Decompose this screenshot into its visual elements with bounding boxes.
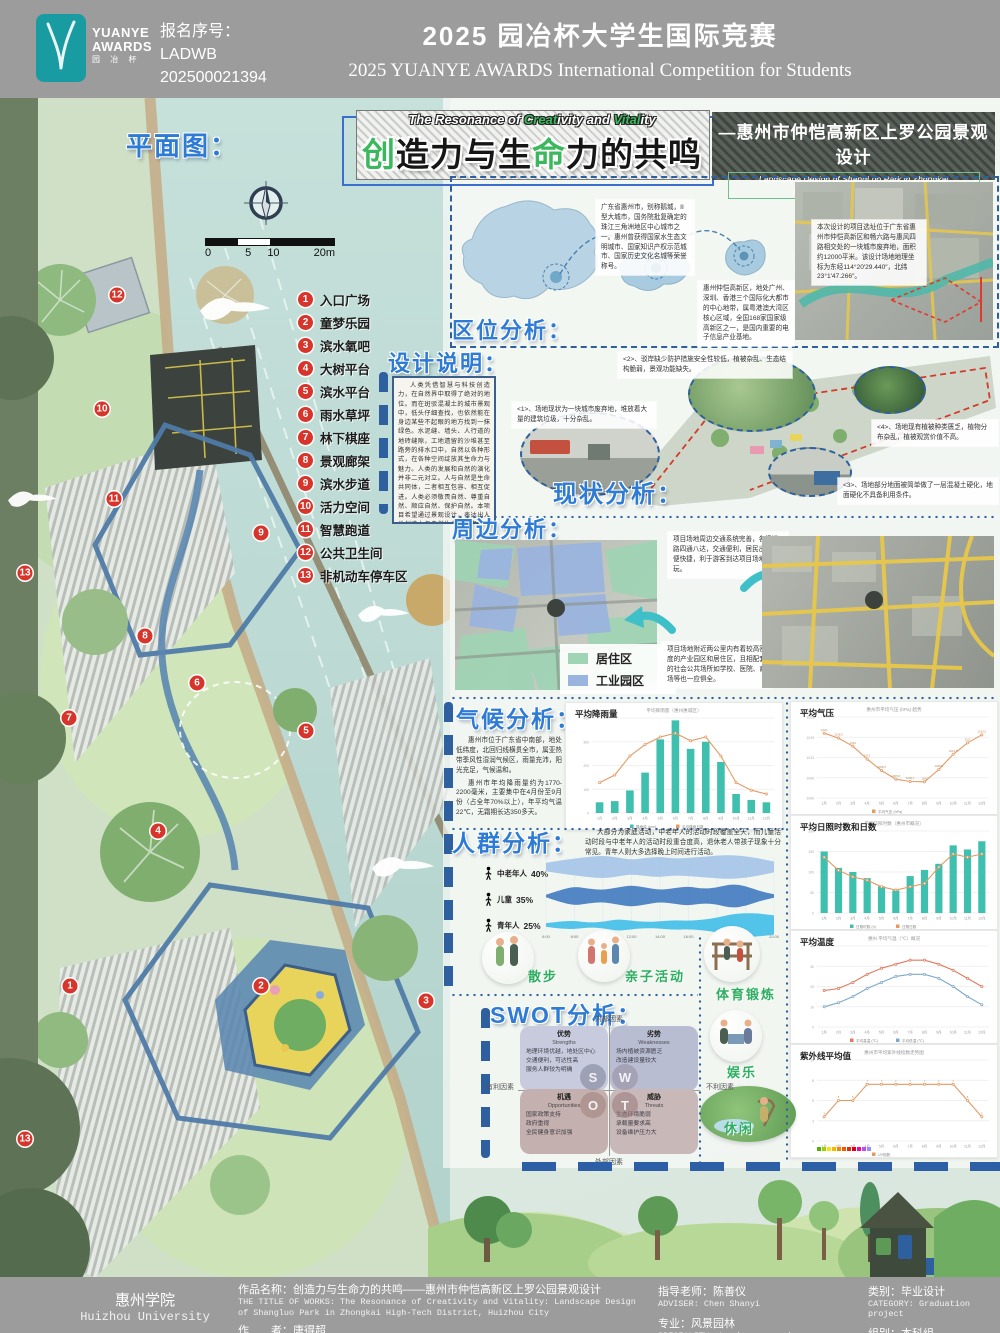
svg-text:9月: 9月 xyxy=(718,817,723,821)
plan-label: 平面图： xyxy=(126,126,238,163)
reg-code-2: 202500021394 xyxy=(160,66,267,89)
legend-number: 5 xyxy=(298,384,313,399)
svg-text:1月: 1月 xyxy=(822,802,827,806)
legend-item: 1入口广场 xyxy=(298,288,408,311)
work-block: 作品名称：创造力与生命力的共鸣——惠州市仲恺高新区上罗公园景观设计 THE TI… xyxy=(238,1281,648,1333)
svg-text:0: 0 xyxy=(812,912,814,916)
svg-text:3月: 3月 xyxy=(850,917,855,921)
swot-axis-top: 内部因素 xyxy=(595,1014,623,1024)
svg-text:7月: 7月 xyxy=(908,1145,913,1149)
svg-text:7月: 7月 xyxy=(908,802,913,806)
svg-text:1000: 1000 xyxy=(806,797,814,801)
legend-label: 滨水平台 xyxy=(320,382,370,401)
svg-text:11月: 11月 xyxy=(964,1145,971,1149)
adviser-cn: 指导老师：陈善仪 xyxy=(658,1283,858,1299)
svg-text:10月: 10月 xyxy=(950,1031,957,1035)
svg-text:平均降雨量（惠州惠城区）: 平均降雨量（惠州惠城区） xyxy=(646,707,701,714)
chart-panel-label: 平均气压 xyxy=(800,707,834,719)
author-cn: 作 者：唐得超 xyxy=(238,1322,648,1333)
title-part: Vital xyxy=(614,112,641,127)
person-icon xyxy=(484,866,493,881)
work-title-en: THE TITLE OF WORKS: The Resonance of Cre… xyxy=(238,1297,648,1320)
chart-rainfall: 平均降雨量平均降雨量（惠州惠城区）40030020010001月2月3月4月5月… xyxy=(565,702,783,830)
svg-text:4月: 4月 xyxy=(642,817,647,821)
school-name-en: Huizhou University xyxy=(40,1310,250,1324)
svg-text:1005: 1005 xyxy=(921,776,928,780)
svg-text:12月: 12月 xyxy=(978,917,985,921)
status-note-1: <1>、场地现状为一块城市废弃地，堆放着大量的建筑垃圾，十分杂乱。 xyxy=(512,402,656,428)
person-icon xyxy=(484,918,493,933)
legend-label: 大树平台 xyxy=(320,359,370,378)
svg-text:3: 3 xyxy=(981,1111,983,1115)
swot-axis-right: 不利因素 xyxy=(706,1082,734,1092)
svg-text:平均低温 (℃): 平均低温 (℃) xyxy=(902,1038,924,1043)
chart-panel-label: 紫外线平均值 xyxy=(800,1050,851,1062)
swot-letter-t: T xyxy=(612,1092,638,1118)
svg-text:10月: 10月 xyxy=(950,917,957,921)
family-activity-icon xyxy=(578,930,630,982)
swot-diagram: 内部因素 外部因素 有利因素 不利因素 优势Strengths地理环境优越，地处… xyxy=(516,1016,702,1164)
svg-text:2月: 2月 xyxy=(836,917,841,921)
svg-text:2月: 2月 xyxy=(612,817,617,821)
crowd-group-1: 中老年人 40% xyxy=(484,866,548,881)
svg-text:10月: 10月 xyxy=(950,1145,957,1149)
svg-text:7: 7 xyxy=(909,1079,911,1083)
svg-text:3月: 3月 xyxy=(850,1031,855,1035)
svg-text:9月: 9月 xyxy=(936,917,941,921)
location-title: 区位分析： xyxy=(452,313,572,345)
svg-text:11月: 11月 xyxy=(964,802,971,806)
svg-text:6月: 6月 xyxy=(893,802,898,806)
svg-text:5月: 5月 xyxy=(879,802,884,806)
legend-number: 1 xyxy=(298,292,313,307)
title-part: 造力与生 xyxy=(396,136,532,173)
svg-text:150: 150 xyxy=(808,850,814,854)
title-part: Creat xyxy=(524,112,557,127)
climate-p2: 惠州市年均降雨量约为1770-2200毫米，主要集中在4月份至9月份（占全年70… xyxy=(456,779,562,819)
svg-text:3: 3 xyxy=(823,1111,825,1115)
activity-sport-label: 体育锻炼 xyxy=(716,984,776,1003)
design-statement: 人类凭借智慧与科技创造力，在自然界中取得了绝对的地位。而在斑驳混凝土的城市景观中… xyxy=(392,376,496,524)
svg-text:20: 20 xyxy=(810,985,814,989)
climate-p1: 惠州市位于广东省中南部，地处低纬度，北回归线横贯全市，属亚热带季风性湿润气候区，… xyxy=(456,736,562,776)
svg-text:5月: 5月 xyxy=(879,1031,884,1035)
svg-text:8月: 8月 xyxy=(922,917,927,921)
svg-text:5: 5 xyxy=(967,1095,969,1099)
svg-text:0: 0 xyxy=(812,1140,814,1144)
swot-quadrant-name: 劣势 xyxy=(616,1031,692,1040)
svg-text:8月: 8月 xyxy=(703,817,708,821)
svg-text:9月: 9月 xyxy=(936,802,941,806)
scale-bar: 0 5 10 20m xyxy=(205,238,335,259)
svg-text:4月: 4月 xyxy=(865,802,870,806)
svg-text:10月: 10月 xyxy=(732,817,739,821)
walking-icon xyxy=(482,932,534,984)
crowd-group-3: 青年人 25% xyxy=(484,918,541,933)
logo-line2: AWARDS xyxy=(92,40,152,54)
swot-letter-s: S xyxy=(580,1064,606,1090)
activity-leisure-label: 休闲 xyxy=(724,1118,754,1137)
residential-label: 居住区 xyxy=(596,650,632,667)
svg-text:11月: 11月 xyxy=(748,817,755,821)
industrial-label: 工业园区 xyxy=(596,672,644,689)
group-cn: 组别：本科组 xyxy=(868,1325,998,1333)
category-block: 类别：毕业设计 CATEGORY: Graduation project 组别：… xyxy=(868,1283,998,1333)
svg-text:7月: 7月 xyxy=(908,917,913,921)
svg-text:3: 3 xyxy=(812,1119,814,1123)
svg-text:1008.5: 1008.5 xyxy=(877,765,886,769)
svg-text:8月: 8月 xyxy=(922,802,927,806)
legend-number: 13 xyxy=(298,568,313,583)
legend-item: 2童梦乐园 xyxy=(298,311,408,334)
svg-text:8月: 8月 xyxy=(922,1145,927,1149)
svg-text:1019.5: 1019.5 xyxy=(978,729,987,733)
category-en: CATEGORY: Graduation project xyxy=(868,1299,998,1319)
legend-number: 7 xyxy=(298,430,313,445)
title-part: 命 xyxy=(532,136,566,173)
group-2-name: 儿童 xyxy=(497,894,512,905)
svg-text:1005.1: 1005.1 xyxy=(906,776,915,780)
legend-number: 9 xyxy=(298,476,313,491)
svg-text:5月: 5月 xyxy=(879,1145,884,1149)
title-part: 力的共鸣 xyxy=(566,136,702,173)
banner-eyebrow: The Resonance of Creativity and Vitality xyxy=(356,112,708,127)
chart-panel-label: 平均降雨量 xyxy=(575,708,618,720)
photo-vegetation xyxy=(854,366,926,414)
svg-text:7: 7 xyxy=(881,1079,883,1083)
location-text-site: 本次设计的项目选址位于广东省惠州市仲恺高新区和畅六路与惠风四路相交处的一块城市废… xyxy=(812,220,926,285)
climate-title: 气候分析： xyxy=(456,700,581,734)
legend-number: 11 xyxy=(298,522,313,537)
site-plan-illustration xyxy=(0,98,450,1277)
svg-text:3月: 3月 xyxy=(850,802,855,806)
svg-text:平均气压 (hPa): 平均气压 (hPa) xyxy=(878,809,902,814)
svg-text:1019: 1019 xyxy=(806,736,814,740)
climate-text: 惠州市位于广东省中南部，地处低纬度，北回归线横贯全市，属亚热带季风性湿润气候区，… xyxy=(456,736,562,818)
legend-item: 13非机动车停车区 xyxy=(298,564,408,587)
location-text-province: 广东省惠州市，别称鹅城，II型大城市，国务院批复确定的珠江三角洲地区中心城市之一… xyxy=(596,200,694,275)
legend-label: 非机动车停车区 xyxy=(320,566,408,585)
svg-text:惠州 平均气温（℃）概况: 惠州 平均气温（℃）概况 xyxy=(868,935,921,942)
logo-wordmark: YUANYE AWARDS 园 冶 杯 xyxy=(92,26,152,65)
group-3-name: 青年人 xyxy=(497,920,520,931)
yuanye-logo-icon xyxy=(36,14,86,82)
legend-item: 12公共卫生间 xyxy=(298,541,408,564)
svg-text:8: 8 xyxy=(812,1079,814,1083)
title-part: ity xyxy=(641,112,656,127)
status-note-3: <3>、场地部分地面被简单做了一层混凝土硬化，地面硬化不具备利用条件。 xyxy=(838,478,998,504)
logo-line3: 园 冶 杯 xyxy=(92,56,152,64)
swot-letter-w: W xyxy=(612,1064,638,1090)
svg-text:7: 7 xyxy=(866,1079,868,1083)
svg-text:12月: 12月 xyxy=(978,802,985,806)
svg-text:1月: 1月 xyxy=(822,917,827,921)
chart-panel-label: 平均温度 xyxy=(800,936,834,948)
footer-bar: 惠州学院 Huizhou University 作品名称：创造力与生命力的共鸣—… xyxy=(0,1277,1000,1333)
adviser-block: 指导老师：陈善仪 ADVISER: Chen Shanyi 专业：风景园林 SP… xyxy=(658,1283,858,1333)
svg-text:6:00: 6:00 xyxy=(542,934,551,939)
status-note-2: <2>、驳岸缺少防护措施安全性较低，植被杂乱、生态结构脆弱，景观功能缺失。 xyxy=(618,352,792,378)
svg-text:7: 7 xyxy=(924,1079,926,1083)
svg-text:8月: 8月 xyxy=(922,1031,927,1035)
svg-text:3月: 3月 xyxy=(627,817,632,821)
swot-quadrant-name: 优势 xyxy=(526,1031,602,1040)
legend-number: 8 xyxy=(298,453,313,468)
header-bar: YUANYE AWARDS 园 冶 杯 报名序号： LADWB 20250002… xyxy=(0,0,1000,98)
svg-text:惠州市平均气压 (hPa) 趋势: 惠州市平均气压 (hPa) 趋势 xyxy=(866,706,922,713)
svg-text:6月: 6月 xyxy=(673,817,678,821)
svg-text:10月: 10月 xyxy=(950,802,957,806)
competition-title-cn: 2025 园冶杯大学生国际竞赛 xyxy=(320,16,880,53)
swot-axis-left: 有利因素 xyxy=(486,1082,514,1092)
surrounding-text-2: 项目场地附近两公里内有着较高密度的产业园区和居住区，且相配套的社会公共场所如学校… xyxy=(662,642,772,688)
legend-label: 童梦乐园 xyxy=(320,313,370,332)
svg-text:7: 7 xyxy=(952,1079,954,1083)
svg-text:11月: 11月 xyxy=(964,1031,971,1035)
design-statement-text: 人类凭借智慧与科技创造力，在自然界中取得了绝对的地位。而在斑驳混凝土的城市景观中… xyxy=(398,381,490,524)
svg-text:7: 7 xyxy=(895,1079,897,1083)
svg-text:2月: 2月 xyxy=(836,802,841,806)
legend-number: 2 xyxy=(298,315,313,330)
title-part: ivity and xyxy=(557,112,613,127)
crowd-title: 人群分析： xyxy=(452,824,577,858)
svg-text:0: 0 xyxy=(812,1026,814,1030)
legend-label: 入口广场 xyxy=(320,290,370,309)
legend-label: 滨水氧吧 xyxy=(320,336,370,355)
legend-label: 智慧跑道 xyxy=(320,520,370,539)
legend-number: 4 xyxy=(298,361,313,376)
surrounding-road-map xyxy=(762,536,994,688)
chart-panel-label: 平均日照时数和日数 xyxy=(800,821,877,833)
design-title: 设计说明： xyxy=(388,346,508,378)
school-block: 惠州学院 Huizhou University xyxy=(40,1289,250,1324)
svg-text:0: 0 xyxy=(587,812,589,816)
svg-text:6月: 6月 xyxy=(893,1031,898,1035)
svg-text:12月: 12月 xyxy=(763,817,770,821)
svg-text:1016: 1016 xyxy=(850,741,857,745)
svg-text:1017: 1017 xyxy=(964,738,971,742)
project-banner: —惠州市仲恺高新区上罗公园景观设计 Landscape Design of Sh… xyxy=(712,112,995,180)
bottom-illustration xyxy=(428,1158,1000,1277)
activity-family-label: 亲子活动 xyxy=(625,966,685,985)
major-cn: 专业：风景园林 xyxy=(658,1315,858,1331)
svg-text:5: 5 xyxy=(812,1099,814,1103)
svg-text:惠州市平均紫外线指数走势图: 惠州市平均紫外线指数走势图 xyxy=(864,1049,924,1056)
svg-text:UV指数: UV指数 xyxy=(878,1152,891,1157)
svg-text:日照时数 (h): 日照时数 (h) xyxy=(856,924,876,929)
swot-letter-o: O xyxy=(580,1092,606,1118)
work-title-cn: 作品名称：创造力与生命力的共鸣——惠州市仲恺高新区上罗公园景观设计 xyxy=(238,1281,648,1297)
svg-text:100: 100 xyxy=(583,788,589,792)
industrial-swatch xyxy=(568,675,588,686)
reg-label: 报名序号： xyxy=(160,20,267,43)
svg-text:12月: 12月 xyxy=(978,1031,985,1035)
category-cn: 类别：毕业设计 xyxy=(868,1283,998,1299)
svg-text:2月: 2月 xyxy=(836,1031,841,1035)
divider-v2 xyxy=(785,700,789,1163)
adviser-en: ADVISER: Chen Shanyi xyxy=(658,1299,858,1309)
group-1-name: 中老年人 xyxy=(497,868,527,879)
poster: YUANYE AWARDS 园 冶 杯 报名序号： LADWB 20250002… xyxy=(0,0,1000,1333)
svg-text:6月: 6月 xyxy=(893,917,898,921)
arrow-left-icon xyxy=(624,604,676,638)
swot-quadrant-name-en: Weaknesses xyxy=(616,1040,692,1046)
svg-text:7月: 7月 xyxy=(908,1031,913,1035)
design-ladder xyxy=(379,372,388,514)
svg-text:9月: 9月 xyxy=(936,1145,941,1149)
svg-text:1月: 1月 xyxy=(822,1031,827,1035)
crowd-group-2: 儿童 35% xyxy=(484,892,533,907)
divider-v1 xyxy=(698,935,702,1163)
status-title: 现状分析： xyxy=(553,474,683,509)
exercise-icon xyxy=(704,926,760,982)
svg-text:7: 7 xyxy=(938,1079,940,1083)
reg-code-1: LADWB xyxy=(160,43,267,66)
residential-swatch xyxy=(568,653,588,664)
svg-text:日照日数: 日照日数 xyxy=(902,924,917,929)
legend-number: 10 xyxy=(298,499,313,514)
legend-label: 雨水草坪 xyxy=(320,405,370,424)
competition-title-en: 2025 YUANYE AWARDS International Competi… xyxy=(280,60,920,82)
svg-text:300: 300 xyxy=(583,740,589,744)
svg-text:1008.8: 1008.8 xyxy=(935,764,944,768)
scale-0: 0 xyxy=(205,247,211,259)
svg-text:10: 10 xyxy=(810,1005,814,1009)
svg-text:1月: 1月 xyxy=(597,817,602,821)
entertainment-icon xyxy=(710,1010,762,1062)
svg-text:平均高温 (℃): 平均高温 (℃) xyxy=(856,1038,878,1043)
svg-text:6月: 6月 xyxy=(893,1145,898,1149)
svg-text:1018.5: 1018.5 xyxy=(834,733,843,737)
svg-text:16:00: 16:00 xyxy=(683,934,694,939)
legend-label: 公共卫生间 xyxy=(320,543,383,562)
svg-text:5月: 5月 xyxy=(658,817,663,821)
banner-title: 创造力与生命力的共鸣 xyxy=(356,128,708,176)
chart-pressure: 平均气压惠州市平均气压 (hPa) 趋势10251019101310061000… xyxy=(790,701,998,815)
registration-number: 报名序号： LADWB 202500021394 xyxy=(160,20,267,90)
group-3-pct: 25% xyxy=(524,921,541,931)
svg-text:9月: 9月 xyxy=(936,1031,941,1035)
svg-text:100: 100 xyxy=(808,871,814,875)
svg-text:30: 30 xyxy=(810,965,814,969)
svg-text:1020: 1020 xyxy=(821,728,828,732)
svg-text:200: 200 xyxy=(583,764,589,768)
svg-text:1006: 1006 xyxy=(806,776,814,780)
chart-temperature: 平均温度惠州 平均气温（℃）概况4030201001月2月3月4月5月6月7月8… xyxy=(790,930,998,1044)
legend-number: 3 xyxy=(298,338,313,353)
svg-text:50: 50 xyxy=(810,891,814,895)
title-part: 创 xyxy=(362,136,396,173)
chart-sunshine: 平均日照时数和日数平均日照时数（惠州市概况）2001501005001月2月3月… xyxy=(790,815,998,930)
legend-label: 林下棋座 xyxy=(320,428,370,447)
svg-text:5: 5 xyxy=(838,1095,840,1099)
legend-number: 12 xyxy=(298,545,313,560)
svg-text:12月: 12月 xyxy=(978,1145,985,1149)
svg-text:7月: 7月 xyxy=(688,817,693,821)
svg-text:4月: 4月 xyxy=(865,1031,870,1035)
group-2-pct: 35% xyxy=(516,895,533,905)
scale-10: 10 xyxy=(267,247,279,259)
scale-5: 5 xyxy=(245,247,251,259)
school-name-cn: 惠州学院 xyxy=(40,1289,250,1310)
legend-number: 6 xyxy=(298,407,313,422)
svg-text:1005.8: 1005.8 xyxy=(892,774,901,778)
legend-label: 景观廊架 xyxy=(320,451,370,470)
north-arrow-icon xyxy=(243,180,289,226)
svg-text:11月: 11月 xyxy=(964,917,971,921)
activity-fun-label: 娱乐 xyxy=(727,1062,757,1081)
scale-20: 20m xyxy=(314,247,335,259)
svg-text:1013: 1013 xyxy=(806,756,814,760)
status-note-4: <4>、场地现有植被种类匮乏，植物分布杂乱，植被观赏价值不高。 xyxy=(872,420,998,446)
chart-uv: 紫外线平均值惠州市平均紫外线指数走势图1085301月2月3月4月5月6月7月8… xyxy=(790,1044,998,1158)
svg-text:4月: 4月 xyxy=(865,917,870,921)
legend-label: 滨水步道 xyxy=(320,474,370,493)
location-text-district: 惠州仲恺高新区，地处广州、深圳、香港三个国际化大都市的中心地带，属粤港澳大湾区核… xyxy=(698,281,794,346)
svg-text:14:00: 14:00 xyxy=(655,934,666,939)
zoning-legend: 居住区 工业园区 xyxy=(560,644,676,694)
legend-label: 活力空间 xyxy=(320,497,370,516)
svg-text:5: 5 xyxy=(852,1095,854,1099)
svg-text:1012: 1012 xyxy=(864,754,871,758)
svg-text:5月: 5月 xyxy=(879,917,884,921)
svg-text:1013.5: 1013.5 xyxy=(949,749,958,753)
logo-line1: YUANYE xyxy=(92,26,152,40)
activity-walk-label: 散步 xyxy=(528,966,558,985)
person-icon xyxy=(484,892,493,907)
swot-quadrant-name-en: Strengths xyxy=(526,1040,602,1046)
title-part: The Resonance of xyxy=(408,112,524,127)
project-title-cn: —惠州市仲恺高新区上罗公园景观设计 xyxy=(712,118,995,168)
